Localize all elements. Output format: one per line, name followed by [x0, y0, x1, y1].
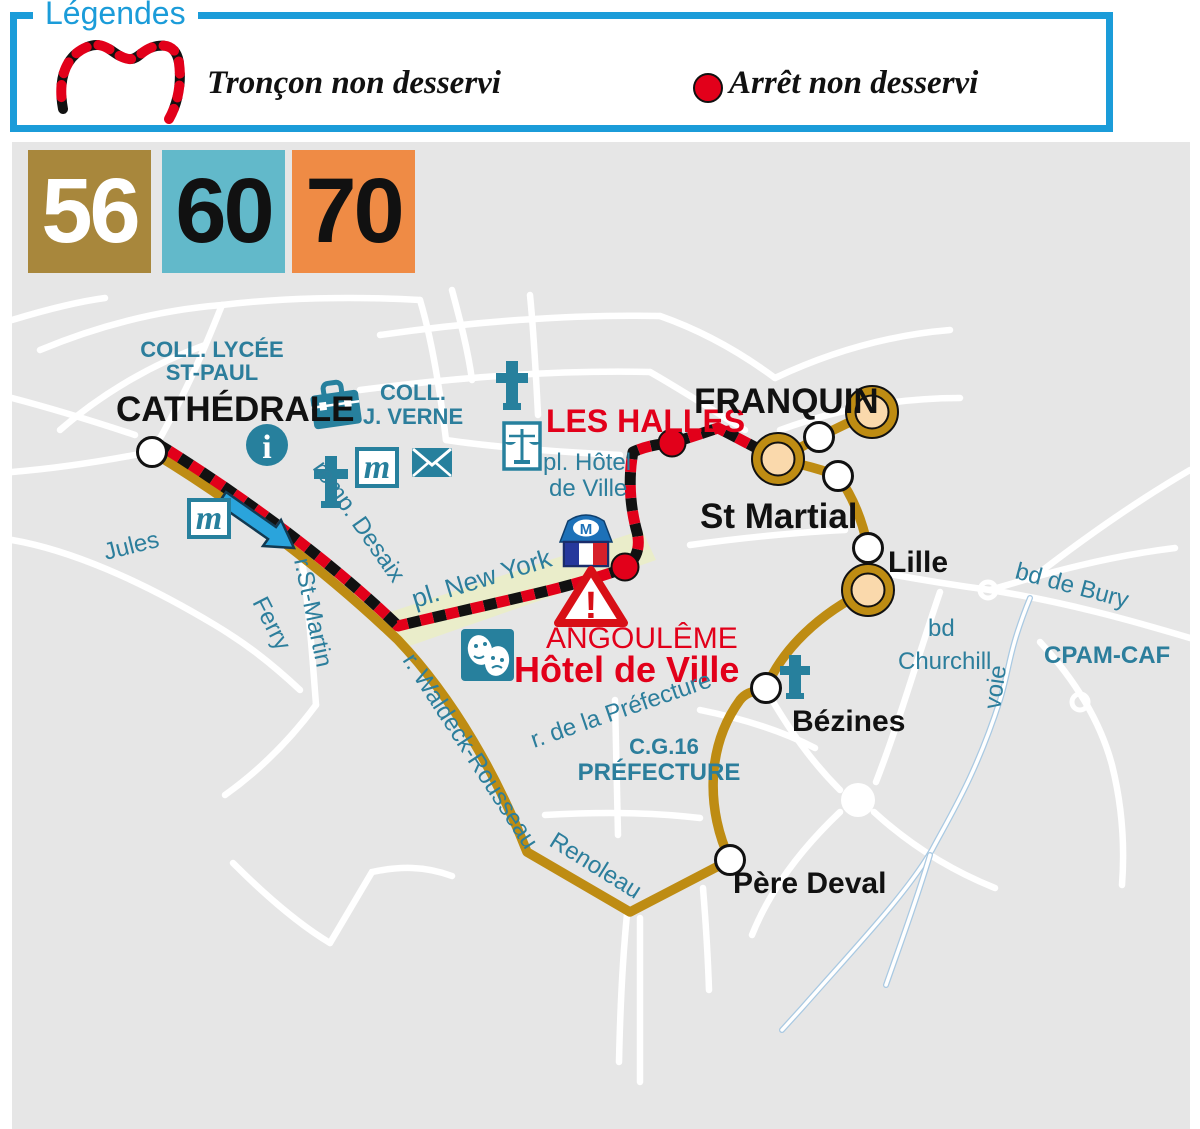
- route-badge-56: 56: [28, 150, 151, 273]
- street-label-pl-hotel-2: de Ville: [549, 475, 627, 502]
- museum-m-icon: m: [189, 500, 229, 537]
- stop-marker: [854, 534, 883, 563]
- roundabout: [841, 783, 875, 817]
- post-envelope-icon: [412, 448, 452, 477]
- poi-label-j-verne: J. VERNE: [363, 404, 463, 429]
- legend-label-arret: Arrêt non desservi: [729, 65, 978, 102]
- stop-cathedrale-marker: [138, 438, 167, 467]
- stop-label-lille: Lille: [888, 546, 948, 579]
- museum-letter: m: [196, 500, 222, 537]
- poi-label-cg16: C.G.16: [629, 734, 699, 759]
- legend-label-troncon: Tronçon non desservi: [207, 65, 501, 102]
- route-number-70: 70: [305, 159, 401, 264]
- info-icon: i: [246, 424, 288, 466]
- museum-letter: m: [364, 449, 390, 486]
- poi-label-cpam-caf: CPAM-CAF: [1044, 642, 1170, 669]
- closed-segment-symbol: [41, 25, 201, 127]
- warning-mark: !: [585, 585, 598, 627]
- street-label-churchill: Churchill: [898, 648, 991, 675]
- route-number-60: 60: [175, 159, 271, 264]
- stop-bezines-marker: [752, 674, 781, 703]
- poi-label-coll-lycee: COLL. LYCÉE: [140, 337, 283, 362]
- stop-lille-marker: [842, 564, 894, 616]
- street-label-bd: bd: [928, 615, 955, 642]
- poi-label-coll: COLL.: [380, 380, 446, 405]
- justice-scales-icon: [504, 423, 541, 469]
- stop-label-st-martial: St Martial: [700, 497, 858, 536]
- legend-box: Légendes Tronçon non desservi Arrêt non …: [10, 12, 1113, 132]
- poi-label-prefecture: PRÉFECTURE: [578, 758, 741, 786]
- town-hall-letter: M: [580, 521, 593, 538]
- route-badge-60: 60: [162, 150, 285, 273]
- info-letter: i: [262, 429, 271, 466]
- theater-masks-icon: [461, 629, 514, 681]
- route-number-56: 56: [41, 159, 137, 264]
- street-label-pl-hotel: pl. Hôtel: [543, 449, 631, 476]
- closed-stop-symbol: [693, 73, 723, 103]
- stop-label-franquin: FRANQUIN: [694, 382, 879, 421]
- closed-stop-hotel-de-ville: [612, 554, 639, 581]
- town-hall-icon: M: [560, 515, 612, 566]
- stop-st-martial-marker: [752, 433, 804, 485]
- transit-map-page: i m: [0, 0, 1200, 1129]
- stop-marker: [824, 462, 853, 491]
- stop-label-cathedrale: CATHÉDRALE: [116, 389, 355, 429]
- stop-marker: [805, 423, 834, 452]
- museum-m-icon: m: [357, 449, 397, 486]
- stop-label-pere-deval: Père Deval: [733, 867, 886, 900]
- stop-label-bezines: Bézines: [792, 705, 905, 738]
- route-badge-70: 70: [292, 150, 415, 273]
- poi-label-st-paul: ST-PAUL: [166, 360, 258, 385]
